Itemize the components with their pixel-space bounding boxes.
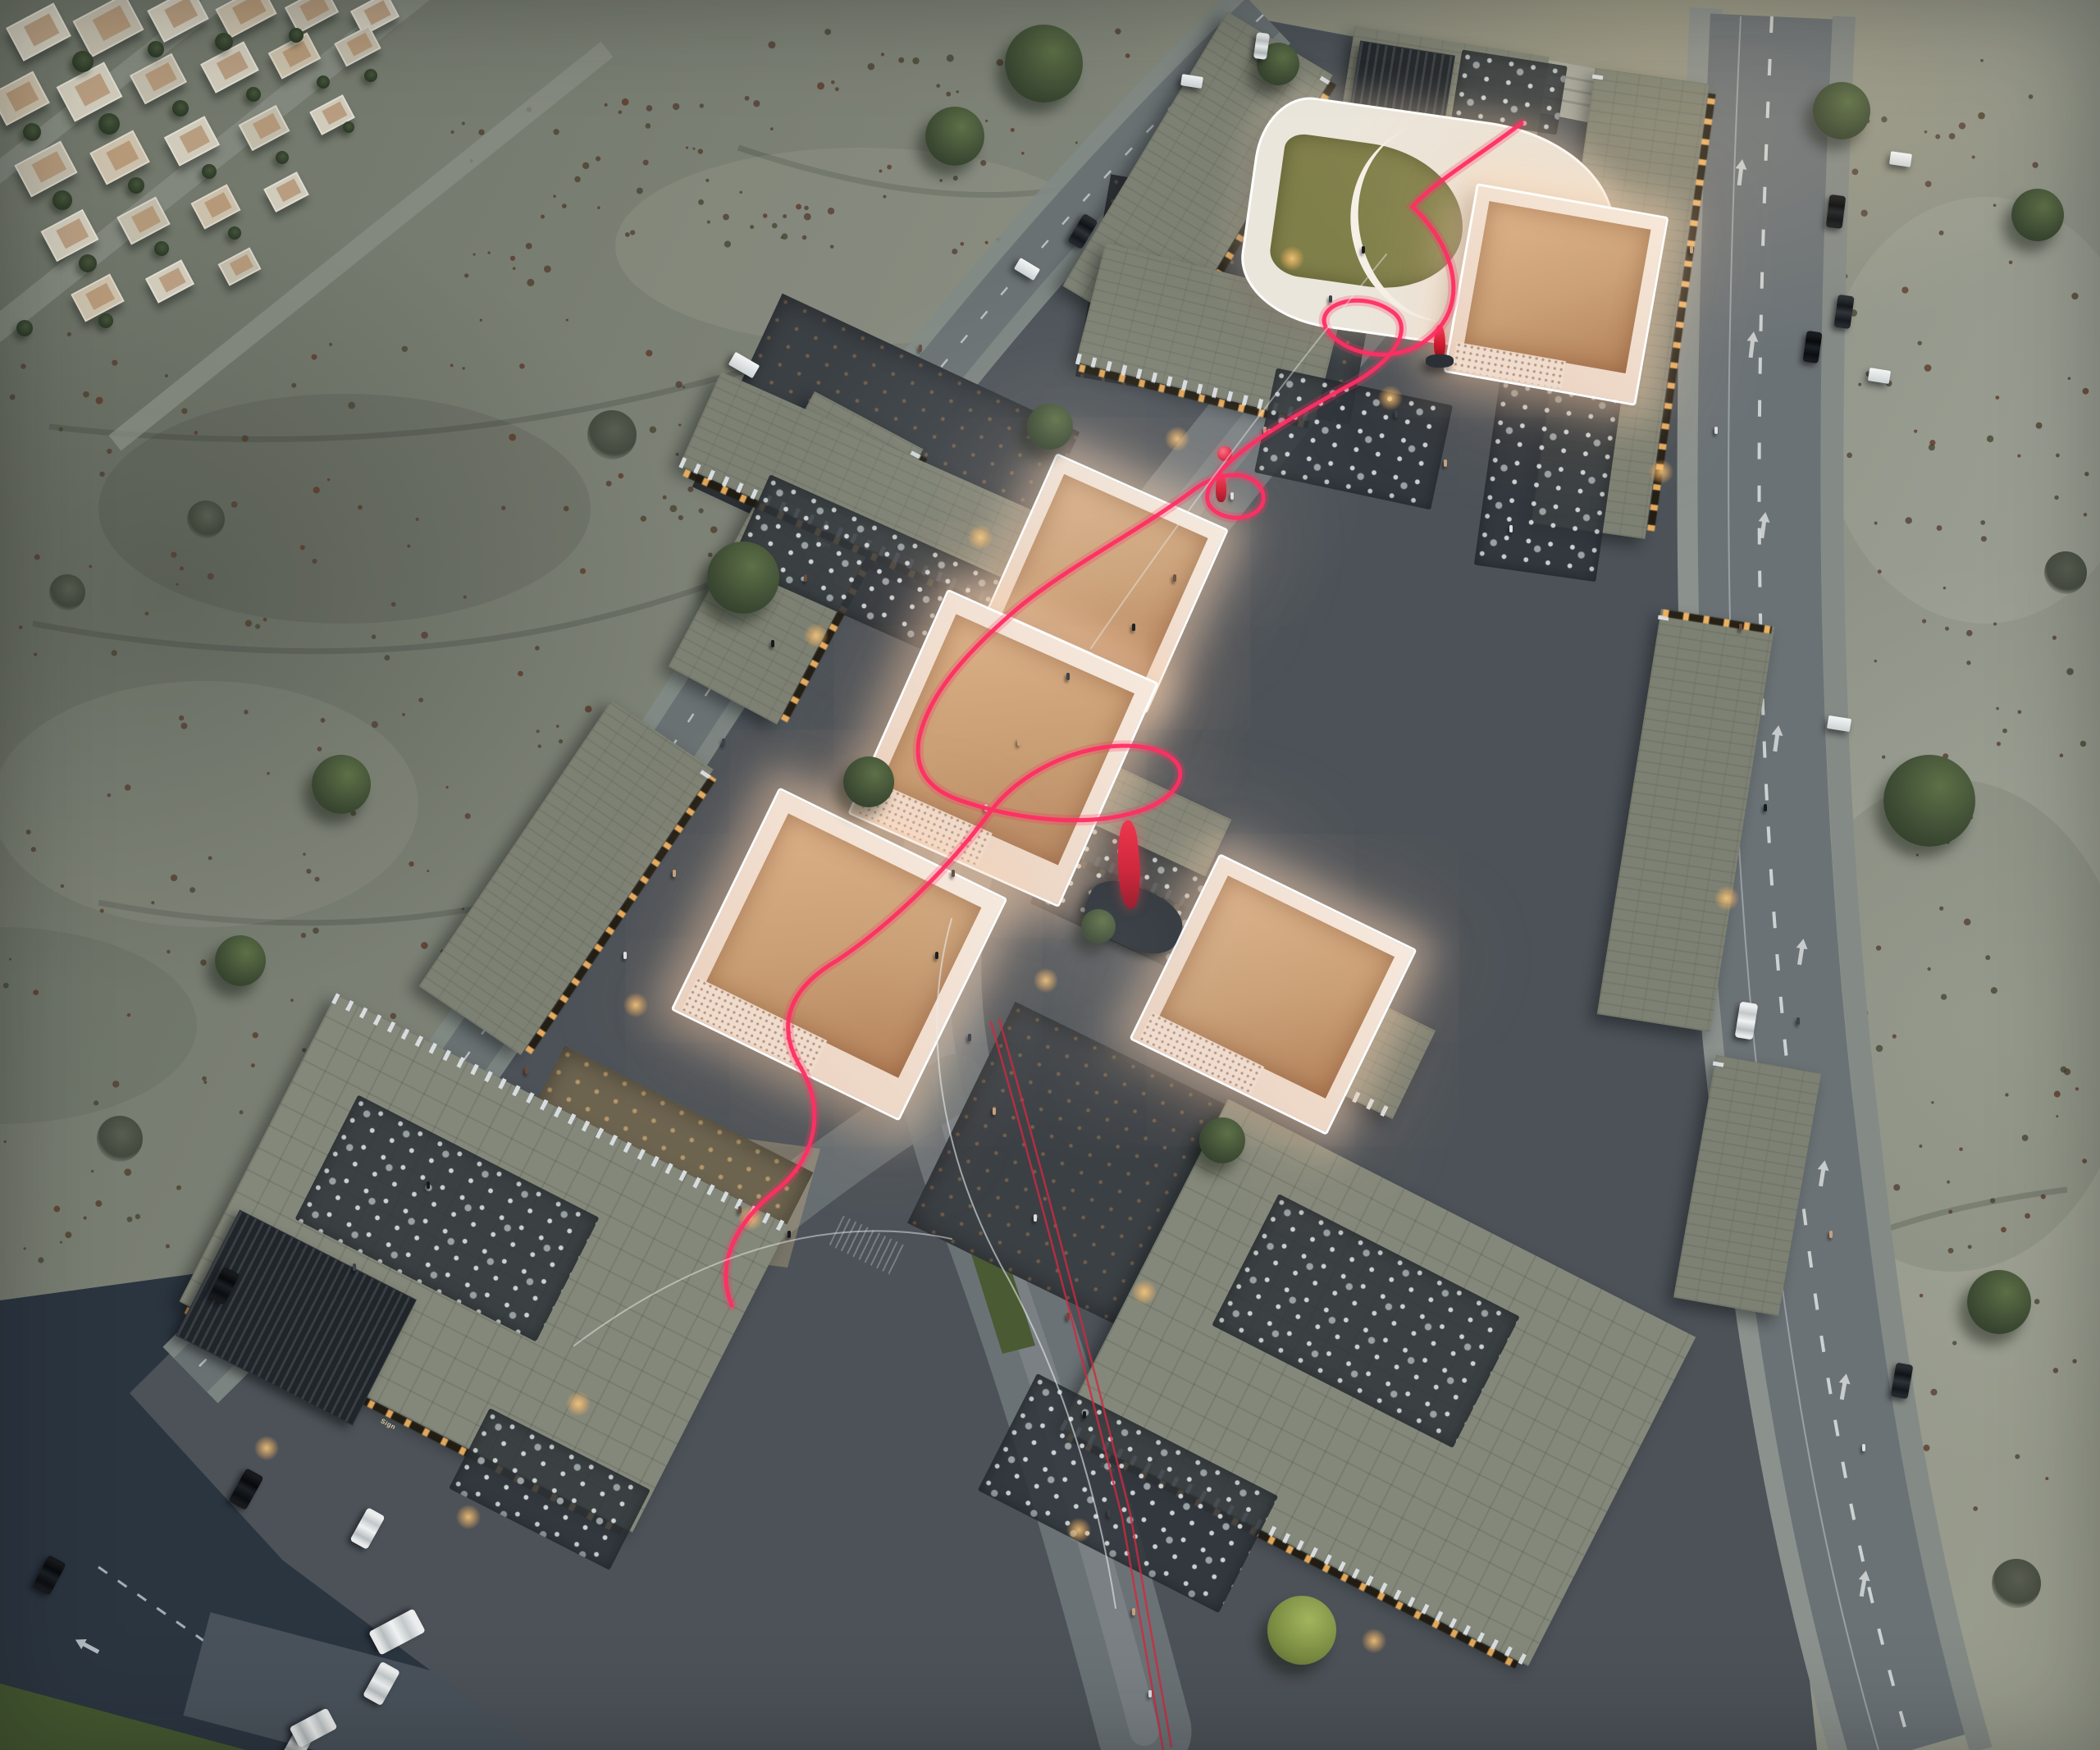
white-guide-line xyxy=(937,919,1116,1608)
white-guide-line xyxy=(574,1231,952,1346)
overlay-layer xyxy=(0,0,2100,1750)
red-route-line xyxy=(991,1022,1163,1750)
red-route-line xyxy=(999,1019,1171,1747)
pink-ribbon-glow xyxy=(726,123,1522,1305)
pink-ribbon xyxy=(726,123,1522,1305)
aerial-architectural-render: Sign Sign Sign xyxy=(0,0,2100,1750)
